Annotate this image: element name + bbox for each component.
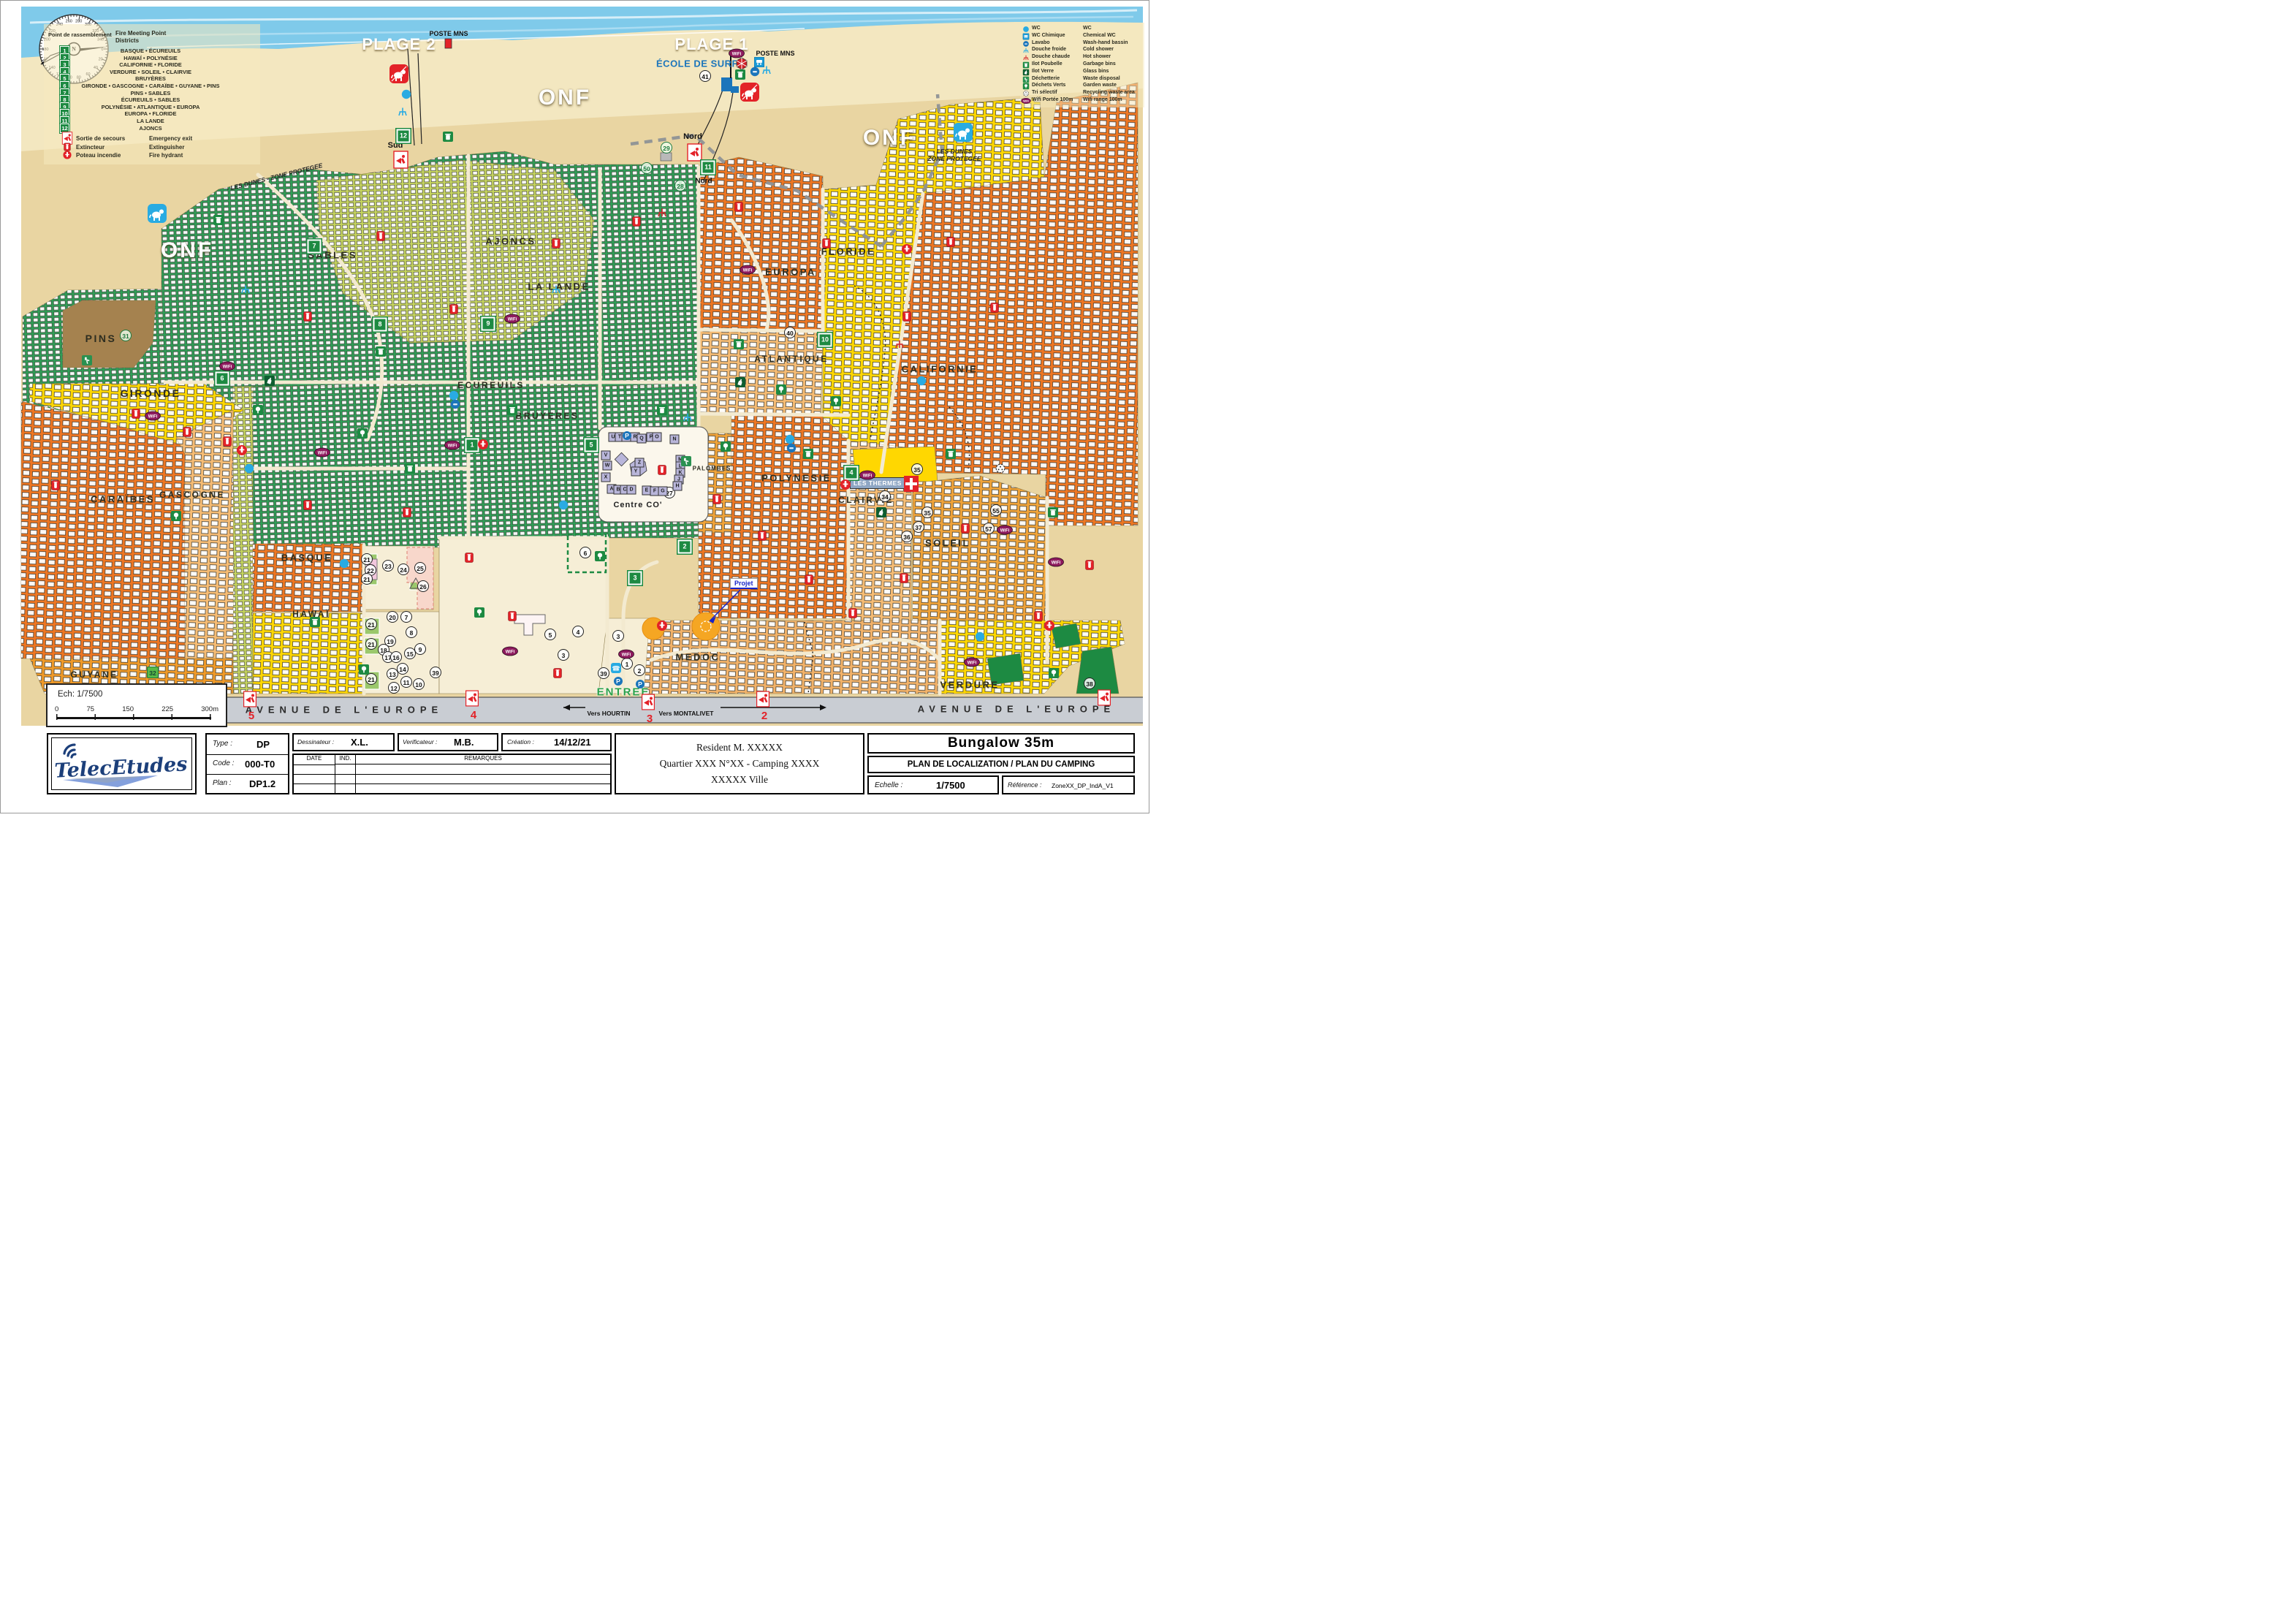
building-letter-G: G: [658, 487, 668, 496]
legend-item-fr: Déchetterie: [1032, 76, 1060, 81]
svg-text:WiFi: WiFi: [318, 452, 327, 456]
numbered-point-23: 23: [382, 560, 394, 572]
fire-hydrant-icon: [840, 479, 851, 490]
fire-meeting-marker-11: 11: [702, 161, 715, 175]
waste-disposal-icon: [681, 456, 691, 466]
les-thermes-label: LES THERMES: [850, 477, 905, 489]
creation-label: Création :: [507, 738, 534, 745]
chemical-wc-icon: [754, 57, 764, 67]
building-letter-U: U: [609, 433, 618, 442]
svg-text:P: P: [638, 680, 642, 688]
safety-label-en: Extinguisher: [149, 144, 184, 151]
wc-icon: [1023, 26, 1030, 33]
green-waste-icon: [1049, 668, 1059, 678]
numbered-point-38: 38: [1084, 678, 1095, 689]
echelle-value: 1/7500: [936, 780, 965, 791]
svg-text:WiFi: WiFi: [743, 269, 753, 273]
fire-meeting-districts: GIRONDE • GASCOGNE • CARAÏBE • GUYANE • …: [81, 83, 219, 89]
fire-extinguisher-icon: [507, 611, 517, 621]
dog-area-icon: [148, 204, 167, 223]
entrance-label: ENTREE: [597, 686, 650, 699]
cold-shower-icon: [683, 412, 693, 422]
fire-meeting-number: 8: [60, 95, 69, 105]
green-waste-icon: [776, 384, 786, 395]
scale-tick: 0: [55, 705, 58, 713]
first-aid-cross-icon: [904, 476, 919, 492]
washbasin-icon: [750, 67, 760, 77]
legend-header-fr: Point de rassemblement: [48, 31, 112, 38]
district-label-polynesie: POLYNESIE: [761, 473, 832, 484]
exit-number: 2: [761, 710, 767, 722]
numbered-point-15: 15: [404, 648, 416, 659]
fire-extinguisher-icon: [551, 238, 561, 248]
green-waste-icon: [357, 428, 368, 439]
emergency-exit-icon: [756, 691, 769, 711]
numbered-point-35: 35: [911, 463, 923, 475]
district-label-bruyeres: BRUYERES: [516, 411, 579, 421]
fire-meeting-marker-3: 3: [628, 572, 642, 585]
fire-meeting-number: 4: [60, 67, 69, 77]
chemical-wc-icon: [1023, 33, 1030, 39]
fire-extinguisher-icon: [303, 500, 313, 510]
numbered-point-2: 2: [634, 664, 645, 676]
cold-shower-icon: [398, 107, 408, 117]
numbered-point-13: 13: [387, 668, 398, 680]
legend-header-districts: Districts: [115, 37, 166, 45]
green-waste-icon: [831, 396, 841, 406]
district-label-hawa-: HAWAÏ: [292, 609, 330, 619]
safety-label-fr: Poteau incendie: [76, 152, 121, 159]
wifi-icon: WiFi: [740, 265, 756, 275]
fire-meeting-districts: VERDURE • SOLEIL • CLAIRVIE: [110, 69, 191, 75]
wc-icon: [244, 463, 254, 474]
logo-box: TelecEtudes: [47, 733, 197, 794]
building-letter-L: L: [676, 462, 685, 471]
fire-meeting-districts: LA LANDE: [137, 118, 164, 124]
svg-text:WiFi: WiFi: [732, 53, 742, 57]
sud-exit-label: Sud: [388, 141, 403, 150]
vers-montalivet-label: Vers MONTALIVET: [659, 710, 714, 717]
parking-icon: P: [622, 430, 632, 441]
fire-meeting-marker-8: 8: [373, 318, 387, 332]
garbage-bin-icon: [443, 132, 453, 142]
fire-extinguisher-icon: [552, 668, 563, 678]
fire-meeting-marker-12: 12: [397, 129, 411, 143]
safety-label-fr: Extincteur: [76, 144, 104, 151]
wifi-icon: WiFi: [859, 471, 875, 480]
district-label-cara-bes: CARAÏBES: [91, 494, 155, 505]
building-letter-B: B: [614, 485, 623, 495]
fire-meeting-districts: AJONCS: [139, 125, 161, 132]
garbage-bin-icon: [946, 449, 956, 459]
waste-disposal-icon: [1023, 76, 1030, 83]
fire-extinguisher-icon: [848, 608, 858, 618]
phone-icon: ☎: [611, 663, 621, 673]
legend-item-fr: WC Chimique: [1032, 33, 1065, 38]
fire-extinguisher-icon: [902, 311, 912, 322]
camping-map-page: 0204060801001201401601802002202402602803…: [0, 0, 1149, 813]
numbered-point-5: 5: [544, 629, 556, 640]
dog-area-icon: [954, 123, 973, 142]
numbered-point-22: 22: [365, 564, 376, 576]
recycling-icon: [1023, 91, 1030, 97]
reference-value: ZoneXX_DP_IndA_V1: [1052, 782, 1114, 789]
district-label-pins: PINS: [85, 333, 117, 344]
legend-item-en: WC: [1083, 26, 1092, 31]
fire-meeting-number: 9: [60, 102, 69, 112]
onf-label-center: ONF: [539, 86, 591, 110]
building-letter-Y: Y: [631, 467, 641, 477]
numbered-point-9: 9: [414, 643, 426, 655]
washbasin-icon: [786, 443, 797, 453]
district-label-gascogne: GASCOGNE: [159, 490, 225, 500]
exit-number: 4: [471, 709, 476, 721]
garbage-bin-icon: [734, 339, 744, 349]
washbasin-icon: [450, 399, 460, 409]
type-value: DP: [256, 739, 270, 750]
numbered-point-8: 8: [406, 626, 417, 638]
type-code-plan-box: Type : DP Code : 000-T0 Plan : DP1.2: [205, 733, 289, 794]
bungalow-box: Bungalow 35m: [867, 733, 1135, 754]
numbered-point-28: 28: [674, 180, 686, 191]
code-value: 000-T0: [245, 759, 275, 770]
numbered-point-31: 31: [120, 330, 132, 341]
numbered-point-40: 40: [784, 327, 796, 338]
green-waste-icon: [359, 664, 369, 675]
emergency-exit-icon: [642, 694, 655, 714]
emergency-exit-icon: [465, 691, 479, 710]
numbered-point-21: 21: [365, 638, 377, 650]
svg-text:WiFi: WiFi: [622, 653, 631, 658]
echelle-box: Echelle : 1/7500: [867, 775, 999, 794]
district-label-atlantique: ATLANTIQUE: [754, 354, 828, 364]
numbered-point-3: 3: [612, 630, 624, 642]
building-letter-R: R: [631, 433, 640, 442]
numbered-point-27: 27: [664, 487, 675, 498]
fire-extinguisher-icon: [757, 531, 767, 541]
numbered-point-24: 24: [398, 564, 409, 575]
plage-1-label: PLAGE 1: [674, 35, 748, 54]
dunes-label-east-line1: - LES DUNES -: [932, 148, 976, 156]
scale-tick: 225: [161, 705, 173, 713]
numbered-point-20: 20: [387, 611, 398, 623]
legend-item-fr: Lavabo: [1032, 40, 1050, 45]
fire-meeting-districts: ÉCUREUILS • SABLES: [121, 96, 180, 103]
fire-extinguisher-icon: [821, 238, 832, 248]
garbage-bin-icon: [803, 449, 813, 459]
svg-text:WiFi: WiFi: [1023, 100, 1029, 103]
garbage-bin-icon: [1023, 62, 1030, 69]
fire-meeting-marker-7: 7: [308, 240, 322, 254]
plan-value: DP1.2: [249, 778, 275, 789]
legend-item-fr: Tri sélectif: [1032, 90, 1057, 95]
fire-hydrant-icon: [1044, 621, 1054, 631]
district-label-guyane: GUYANE: [70, 669, 118, 680]
exit-number: 3: [647, 713, 653, 725]
wifi-icon: WiFi: [145, 411, 161, 421]
numbered-point-18: 18: [378, 644, 389, 656]
fire-meeting-marker-6: 6: [216, 372, 229, 386]
revisions-ind-header: IND.: [335, 755, 355, 764]
building-letter-C: C: [620, 485, 630, 495]
scale-tick: 150: [122, 705, 134, 713]
washbasin-icon: [1023, 40, 1030, 47]
fire-meeting-districts: POLYNÉSIE • ATLANTIQUE • EUROPA: [102, 104, 200, 110]
numbered-point-41: 41: [699, 70, 711, 82]
numbered-point-16: 16: [390, 651, 402, 663]
fire-hydrant-icon: [657, 621, 667, 631]
numbered-point-25: 25: [414, 562, 426, 574]
cold-shower-icon: [761, 65, 772, 75]
code-label: Code :: [213, 759, 234, 767]
no-dogs-icon: [740, 83, 759, 102]
emergency-exit-icon: [1098, 690, 1111, 710]
glass-bin-icon: [1023, 69, 1030, 75]
district-label-ecureuils: ECUREUILS: [457, 380, 525, 390]
scale-ratio: Ech: 1/7500: [58, 690, 102, 699]
building-letter-M: M: [676, 455, 685, 465]
svg-text:WiFi: WiFi: [508, 318, 517, 322]
plan-label: Plan :: [213, 779, 232, 787]
echelle-label: Echelle :: [875, 781, 902, 789]
building-letter-S: S: [622, 433, 631, 442]
plan-title-box: PLAN DE LOCALIZATION / PLAN DU CAMPING: [867, 756, 1135, 773]
fire-meeting-number: 1: [60, 46, 69, 56]
wifi-icon: WiFi: [997, 525, 1013, 535]
district-label-basque: BASQUE: [281, 553, 333, 564]
fire-meeting-marker-1: 1: [465, 439, 479, 452]
scale-tick: 300m: [201, 705, 218, 713]
onf-label-east: ONF: [863, 126, 916, 151]
legend-item-en: Garden waste: [1083, 83, 1117, 88]
fire-meeting-number: 3: [60, 60, 69, 69]
wifi-icon: WiFi: [729, 49, 745, 58]
district-label-floride: FLORIDE: [821, 246, 876, 257]
building-letter-W: W: [603, 461, 612, 471]
poste-mns-label-east: POSTE MNS: [756, 50, 794, 57]
legend-item-fr: WC: [1032, 26, 1041, 31]
cold-shower-icon: [240, 284, 251, 295]
district-label-palombes: PALOMBES: [693, 466, 731, 472]
cold-shower-icon: [551, 284, 561, 295]
garbage-bin-icon: [213, 215, 224, 225]
svg-text:☎: ☎: [612, 665, 620, 672]
parking-icon: P: [613, 676, 623, 686]
numbered-point-29: 29: [661, 142, 672, 153]
numbered-point-57: 57: [983, 523, 995, 534]
dessinateur-label: Dessinateur :: [297, 738, 334, 745]
logo-text: TelecEtudes: [54, 753, 188, 782]
dunes-label-east-line2: ZONE PROTEGEE: [927, 156, 981, 163]
plan-title: PLAN DE LOCALIZATION / PLAN DU CAMPING: [869, 757, 1133, 772]
numbered-point-36: 36: [901, 531, 913, 542]
district-label-ajoncs: AJONCS: [485, 236, 536, 247]
green-waste-icon: [253, 405, 263, 415]
poste-mns-label-west: POSTE MNS: [429, 30, 468, 37]
svg-text:WiFi: WiFi: [148, 415, 158, 420]
fire-extinguisher-icon: [63, 143, 71, 151]
fire-hydrant-icon: [237, 445, 247, 455]
district-label-sables: SABLES: [308, 250, 357, 261]
legend-item-en: Recycling waste area: [1083, 90, 1135, 95]
green-waste-icon: [1023, 83, 1030, 90]
drawing-info: Dessinateur : X.L. Verificateur : M.B. C…: [292, 733, 612, 794]
fire-meeting-number: 12: [60, 124, 69, 133]
legend-item-fr: Douche chaude: [1032, 54, 1070, 59]
numbered-point-12: 12: [388, 682, 400, 694]
svg-text:WiFi: WiFi: [1052, 561, 1061, 566]
dunes-protected-zone-label-west: - LES DUNES - ZONE PROTEGEE: [227, 162, 324, 193]
verificateur-value: M.B.: [454, 737, 474, 748]
safety-label-en: Emergency exit: [149, 135, 192, 142]
legend-item-en: Chemical WC: [1083, 33, 1116, 38]
fire-extinguisher-icon: [222, 436, 232, 447]
wc-icon: [449, 390, 459, 401]
fire-extinguisher-icon: [946, 237, 956, 247]
wifi-icon: WiFi: [504, 314, 520, 324]
creation-value: 14/12/21: [554, 737, 591, 748]
nord-exit-label-2: Nord: [695, 178, 712, 186]
scale-bar: Ech: 1/7500 075150225300m: [46, 683, 227, 727]
green-waste-icon: [721, 441, 731, 452]
facilities-legend: WCWCWC ChimiqueChemical WCLavaboWash-han…: [1020, 23, 1144, 107]
district-label-californie: CALIFORNIE: [902, 364, 978, 375]
green-waste-icon: [171, 511, 181, 521]
building-letter-T: T: [615, 433, 625, 442]
fire-meeting-number: 5: [60, 74, 69, 83]
fire-meeting-marker-9: 9: [482, 317, 495, 331]
garbage-bin-icon: [376, 346, 386, 357]
fire-meeting-number: 11: [60, 116, 69, 126]
building-letter-D: D: [627, 485, 636, 495]
no-dogs-icon: [389, 64, 408, 83]
fire-meeting-districts: EUROPA • FLORIDE: [125, 110, 177, 117]
dessinateur-value: X.L.: [351, 737, 368, 748]
legend-item-en: Hot shower: [1083, 54, 1111, 59]
fire-extinguisher-icon: [734, 202, 744, 212]
numbered-point-6: 6: [579, 547, 591, 558]
fire-extinguisher-icon: [464, 553, 474, 563]
fire-meeting-number: 7: [60, 88, 69, 98]
hot-shower-icon: [657, 208, 667, 218]
numbered-point-21: 21: [361, 573, 373, 585]
projet-label: Projet: [730, 578, 758, 589]
numbered-point-7: 7: [400, 611, 412, 623]
wifi-icon: WiFi: [219, 362, 235, 371]
numbered-point-14: 14: [397, 663, 408, 675]
fire-extinguisher-icon: [1084, 560, 1095, 570]
resident-line-3: XXXXX Ville: [616, 774, 863, 786]
ecole-de-surf-label: ÉCOLE DE SURF: [656, 58, 738, 69]
telecetudes-logo: TelecEtudes: [48, 735, 195, 793]
parking-icon: P: [635, 679, 645, 689]
fire-meeting-districts: BASQUE • ÉCUREUILS: [121, 48, 180, 54]
safety-label-fr: Sortie de secours: [76, 135, 125, 142]
poste-mns-icon: [735, 57, 748, 70]
cold-shower-icon: [1023, 48, 1030, 54]
glass-bin-icon: [735, 377, 745, 387]
svg-text:WiFi: WiFi: [506, 650, 515, 655]
bungalow-title: Bungalow 35m: [869, 735, 1133, 752]
garbage-bin-icon: [657, 405, 667, 415]
garbage-bin-icon: [507, 405, 517, 415]
numbered-point-19: 19: [384, 635, 396, 647]
type-label: Type :: [213, 740, 232, 748]
garbage-bin-icon: [405, 463, 415, 474]
numbered-point-11: 11: [400, 676, 412, 688]
district-label-medoc: MEDOC: [676, 652, 721, 663]
numbered-point-21: 21: [365, 618, 377, 630]
green-waste-icon: [474, 607, 484, 618]
numbered-point-10: 10: [413, 678, 425, 690]
fire-extinguisher-icon: [402, 507, 412, 517]
fire-meeting-marker-4: 4: [845, 466, 859, 480]
fire-meeting-districts: HAWAÏ • POLYNÉSIE: [123, 55, 178, 61]
building-letter-F: F: [650, 487, 660, 496]
glass-bin-icon: [265, 376, 275, 386]
building-letter-P: P: [647, 433, 656, 442]
district-label-europa: EUROPA: [765, 267, 816, 278]
numbered-point-3: 3: [558, 649, 569, 661]
centre-commercial-label: Centre CO': [613, 501, 662, 509]
svg-text:WiFi: WiFi: [448, 444, 457, 449]
fire-extinguisher-icon: [449, 304, 459, 314]
building-letter-O: O: [653, 433, 662, 442]
numbered-point-4: 4: [572, 626, 584, 637]
plage-2-label: PLAGE 2: [362, 35, 436, 54]
district-label-soleil: SOLEIL: [925, 538, 970, 549]
fire-extinguisher-icon: [631, 216, 642, 227]
resident-line-2: Quartier XXX N°XX - Camping XXXX: [616, 758, 863, 770]
fire-meeting-districts: CALIFORNIE • FLORIDE: [119, 61, 182, 68]
building-letter-H: H: [673, 482, 683, 491]
legend-item-en: Garbage bins: [1083, 61, 1116, 67]
numbered-point-35: 35: [921, 506, 933, 518]
nord-exit-label: Nord: [683, 132, 702, 141]
numbered-point-39: 39: [598, 667, 609, 679]
fire-extinguisher-icon: [131, 409, 141, 419]
fire-extinguisher-icon: [303, 311, 313, 322]
onf-label-west: ONF: [161, 238, 213, 263]
numbered-point-26: 26: [417, 580, 429, 592]
wc-icon: [916, 376, 927, 386]
fire-meeting-districts: PINS • SABLES: [131, 90, 171, 96]
legend-item-fr: Déchets Verts: [1032, 83, 1065, 88]
numbered-point-39: 39: [430, 667, 441, 678]
district-label-verdure: VERDURE: [940, 680, 999, 691]
fire-hydrant-icon: [902, 244, 912, 254]
district-label-clairvie: CLAIRVIE: [838, 495, 894, 505]
wifi-icon: WiFi: [1048, 558, 1064, 567]
building-letter-Q: Q: [637, 434, 647, 444]
hot-shower-icon: [894, 339, 905, 349]
fire-extinguisher-icon: [182, 427, 192, 437]
fire-meeting-marker-2: 2: [678, 540, 692, 554]
avenue-label-west: AVENUE DE L'EUROPE: [246, 705, 443, 716]
legend-item-en: Wash-hand bassin: [1083, 40, 1128, 45]
svg-text:P: P: [616, 678, 620, 685]
wifi-icon: WiFi: [964, 658, 980, 667]
numbered-point-17: 17: [382, 651, 394, 663]
revisions-date-header: DATE: [294, 755, 335, 765]
avenue-label-east: AVENUE DE L'EUROPE: [918, 704, 1115, 715]
resident-box: Resident M. XXXXX Quartier XXX N°XX - Ca…: [615, 733, 864, 794]
fire-extinguisher-icon: [50, 480, 61, 490]
legend-item-fr: Douche froide: [1032, 47, 1066, 52]
wifi-icon: WiFi: [444, 441, 460, 450]
numbered-point-1: 1: [621, 658, 633, 669]
green-waste-icon: [595, 551, 605, 561]
